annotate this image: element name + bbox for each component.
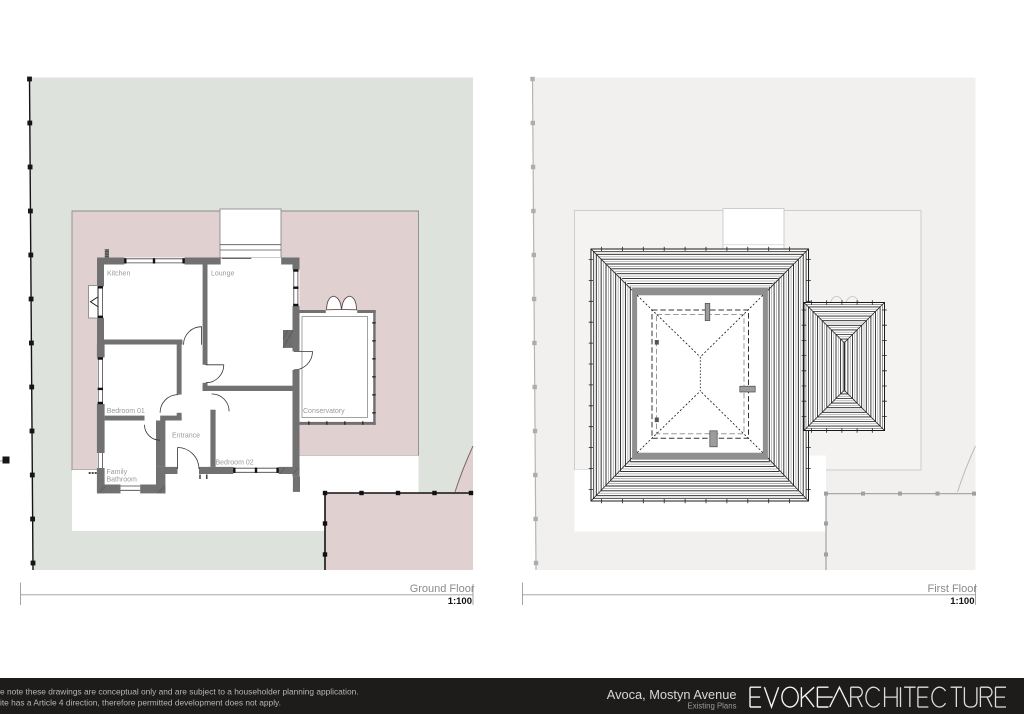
svg-text:Bathroom: Bathroom	[107, 476, 138, 483]
svg-text:Family: Family	[107, 469, 128, 476]
svg-text:Kitchen: Kitchen	[107, 271, 130, 278]
svg-text:Avoca, Mostyn Avenue: Avoca, Mostyn Avenue	[607, 687, 737, 702]
svg-text:Bedroom 02: Bedroom 02	[216, 460, 254, 467]
svg-text:First Floor: First Floor	[928, 583, 978, 595]
svg-text:Ground Floor: Ground Floor	[410, 583, 475, 595]
svg-text:Bedroom 01: Bedroom 01	[107, 408, 145, 415]
svg-text:Conservatory: Conservatory	[303, 408, 345, 415]
svg-text:Existing Plans: Existing Plans	[688, 702, 737, 711]
svg-text:Entrance: Entrance	[172, 432, 200, 439]
svg-text:e note these drawings are conc: e note these drawings are conceptual onl…	[0, 687, 359, 697]
svg-text:1:100: 1:100	[950, 596, 974, 607]
svg-text:1:100: 1:100	[448, 596, 472, 607]
svg-text:ite has a Article 4 direction,: ite has a Article 4 direction, therefore…	[0, 698, 281, 708]
svg-text:Lounge: Lounge	[211, 271, 234, 278]
